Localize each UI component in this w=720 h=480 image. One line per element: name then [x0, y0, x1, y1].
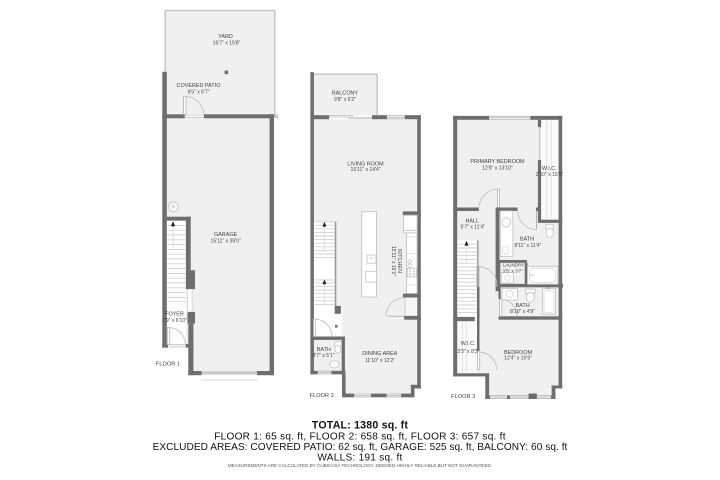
svg-text:8'11" x 11'4": 8'11" x 11'4" — [514, 243, 541, 249]
svg-text:9'5" x 6'7": 9'5" x 6'7" — [187, 90, 209, 96]
svg-text:KITCHEN: KITCHEN — [396, 249, 402, 273]
svg-text:3'5" x 3'7": 3'5" x 3'7" — [502, 269, 523, 274]
svg-text:16'7" x 15'8": 16'7" x 15'8" — [213, 41, 241, 47]
svg-text:MEASUREMENTS ARE CALCULATED BY: MEASUREMENTS ARE CALCULATED BY CUBICASA … — [228, 463, 492, 468]
svg-text:4'7" x 5'1": 4'7" x 5'1" — [312, 353, 334, 359]
svg-text:7'9" x 6'10": 7'9" x 6'10" — [162, 318, 187, 324]
svg-text:BALCONY: BALCONY — [332, 91, 358, 97]
svg-text:15'11" x 16'1": 15'11" x 16'1" — [390, 246, 396, 276]
svg-text:3'3" x 8'3": 3'3" x 8'3" — [457, 349, 479, 355]
svg-text:11'10" x 12'2": 11'10" x 12'2" — [365, 358, 395, 364]
svg-text:WALLS: 191 sq. ft: WALLS: 191 sq. ft — [317, 452, 402, 463]
svg-text:GARAGE: GARAGE — [214, 232, 238, 238]
svg-text:12'4" x 16'9": 12'4" x 16'9" — [504, 356, 532, 362]
svg-text:2'10" x 15'9": 2'10" x 15'9" — [536, 172, 564, 178]
svg-text:15'11" x 39'0": 15'11" x 39'0" — [211, 239, 241, 245]
svg-text:FLOOR 1: FLOOR 1 — [156, 362, 180, 368]
svg-text:BATH: BATH — [520, 237, 534, 243]
svg-text:8'10" x 4'9": 8'10" x 4'9" — [510, 309, 535, 315]
svg-text:W.I.C.: W.I.C. — [461, 341, 476, 347]
svg-text:COVERED PATIO: COVERED PATIO — [177, 83, 221, 89]
svg-text:YARD: YARD — [218, 34, 233, 40]
svg-text:9'8" x 6'2": 9'8" x 6'2" — [334, 97, 356, 103]
svg-text:TOTAL: 1380 sq. ft: TOTAL: 1380 sq. ft — [312, 420, 408, 432]
svg-text:5'7" x 11'4": 5'7" x 11'4" — [461, 224, 486, 230]
svg-text:FLOOR 2: FLOOR 2 — [310, 393, 334, 399]
svg-text:BATH: BATH — [317, 347, 331, 353]
svg-text:FLOOR 3: FLOOR 3 — [451, 394, 475, 400]
svg-text:12'8" x 13'10": 12'8" x 13'10" — [482, 166, 513, 172]
svg-text:DINING AREA: DINING AREA — [362, 351, 397, 357]
svg-text:FLOOR 1: 65 sq. ft, FLOOR 2: 6: FLOOR 1: 65 sq. ft, FLOOR 2: 658 sq. ft,… — [214, 431, 506, 442]
svg-text:LAUNDRY: LAUNDRY — [503, 263, 524, 268]
svg-text:PRIMARY BEDROOM: PRIMARY BEDROOM — [470, 159, 525, 165]
svg-text:FOYER: FOYER — [165, 312, 184, 318]
svg-text:15'11" x 14'4": 15'11" x 14'4" — [351, 167, 381, 173]
